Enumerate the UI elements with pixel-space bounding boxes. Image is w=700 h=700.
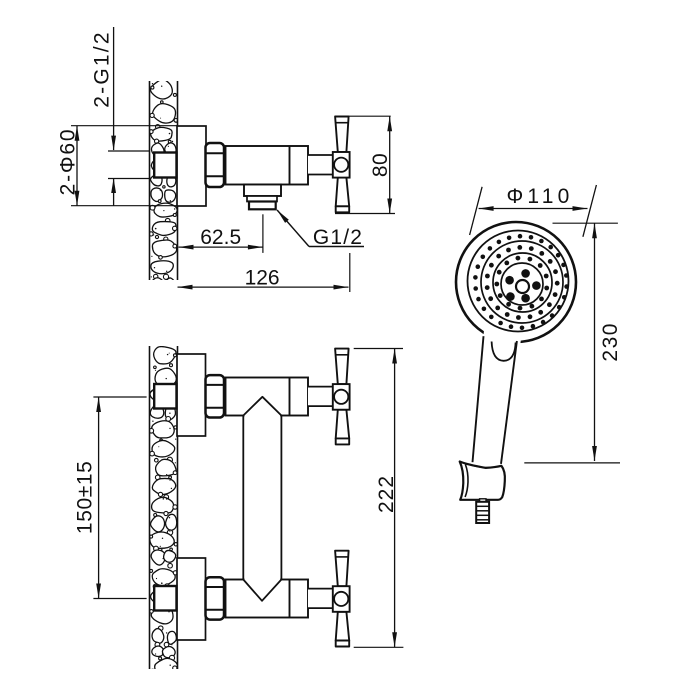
svg-text:150±15: 150±15 bbox=[74, 461, 97, 535]
svg-text:230: 230 bbox=[599, 322, 622, 362]
svg-text:G1/2: G1/2 bbox=[313, 226, 363, 249]
svg-text:62.5: 62.5 bbox=[200, 226, 241, 249]
svg-text:126: 126 bbox=[245, 266, 280, 289]
svg-text:Φ110: Φ110 bbox=[506, 185, 573, 208]
svg-text:80: 80 bbox=[369, 153, 392, 177]
svg-text:2-G1/2: 2-G1/2 bbox=[91, 30, 114, 107]
